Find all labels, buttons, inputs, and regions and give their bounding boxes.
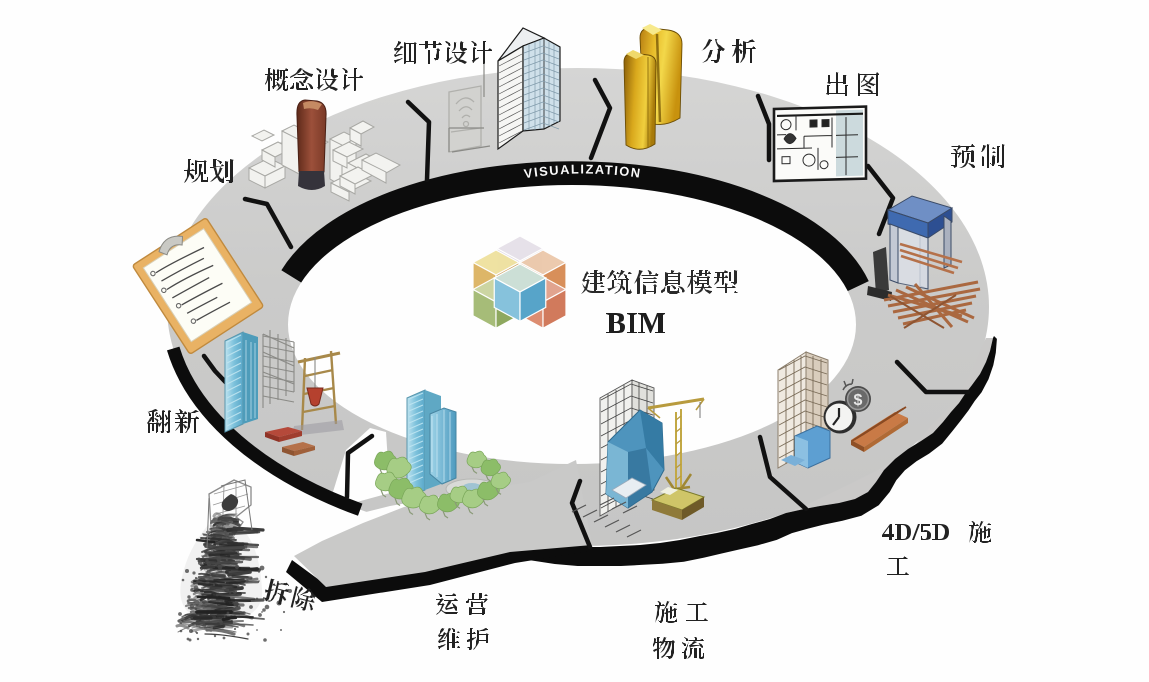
svg-text:$: $ — [854, 392, 863, 409]
